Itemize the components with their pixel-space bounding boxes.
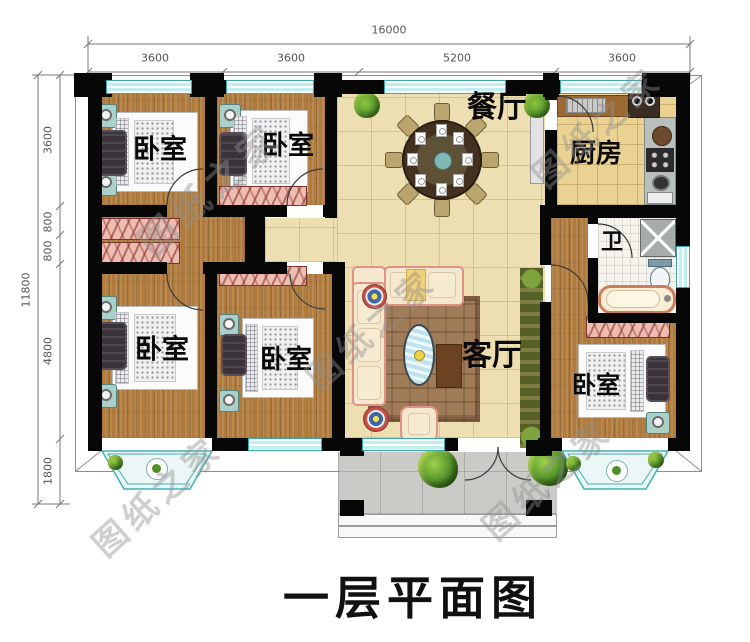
window	[226, 80, 314, 94]
wall-interior	[203, 262, 287, 274]
window	[676, 246, 690, 288]
porch-column	[340, 440, 364, 456]
wall-interior	[325, 94, 337, 218]
bay-table-plant	[612, 466, 621, 475]
wall-exterior-bottom	[445, 438, 458, 451]
room-label-bedroom: 卧室	[572, 373, 620, 397]
wall-interior	[205, 274, 217, 438]
potted-plant-icon	[648, 452, 664, 468]
potted-plant-icon	[108, 455, 123, 470]
wall-interior	[588, 218, 598, 224]
page-title: 一层平面图	[283, 562, 543, 628]
wall-exterior-bottom	[668, 438, 690, 451]
wall-interior	[540, 205, 690, 218]
wall-interior	[540, 302, 551, 438]
room-label-dining: 餐厅	[467, 93, 527, 123]
wall-interior	[540, 218, 551, 265]
room-label-bedroom: 卧室	[135, 337, 189, 364]
wall-interior	[323, 205, 337, 217]
wall-exterior-bottom	[88, 438, 102, 451]
window	[106, 80, 192, 94]
room-label-bathroom: 卫	[601, 232, 623, 254]
room-label-living: 客厅	[462, 341, 522, 371]
wall-interior	[545, 94, 557, 100]
wall-interior	[100, 262, 167, 274]
wall-interior	[588, 313, 676, 323]
floor-plan-canvas: 卧室 卧室 餐厅 厨房 卫 客厅 卧室 卧室 卧室 图纸之家 图纸之家 图纸之家…	[0, 0, 750, 642]
room-label-bedroom: 卧室	[133, 137, 187, 164]
window	[248, 438, 322, 451]
porch-column	[340, 500, 364, 516]
window	[362, 438, 445, 451]
